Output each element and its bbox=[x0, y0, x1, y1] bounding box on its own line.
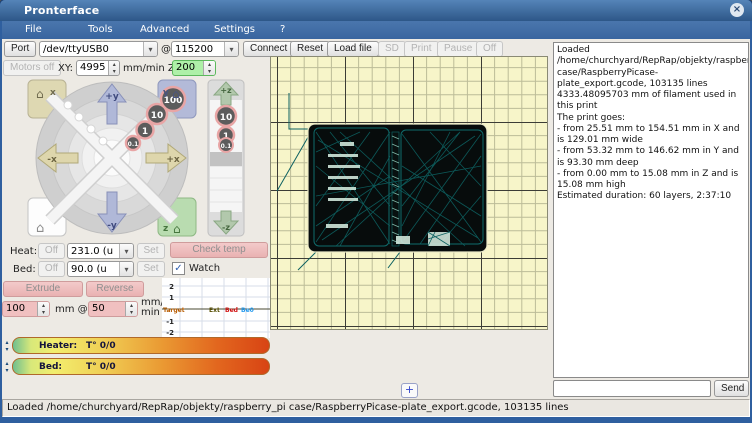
z-step-10-label: 10 bbox=[220, 113, 233, 123]
heater-gauge-value: T° 0/0 bbox=[86, 341, 116, 351]
check-temp-button[interactable]: Check temp bbox=[170, 242, 268, 258]
spin-up-icon[interactable]: ▴ bbox=[109, 61, 119, 68]
spin-down-icon[interactable]: ▾ bbox=[126, 309, 137, 316]
extrude-speed-value: 50 bbox=[89, 302, 125, 316]
spin-down-icon[interactable]: ▾ bbox=[2, 346, 12, 353]
dropdown-icon[interactable]: ▾ bbox=[224, 42, 238, 56]
home-icon: ⌂ bbox=[173, 222, 181, 236]
print-object bbox=[308, 124, 487, 252]
home-z-label: z bbox=[163, 224, 168, 234]
menu-file[interactable]: File bbox=[25, 24, 42, 35]
feed-unit-line2: min bbox=[141, 307, 160, 318]
heater-gauge[interactable]: ▴▾ Heater: T° 0/0 bbox=[2, 337, 270, 354]
spin-up-icon[interactable]: ▴ bbox=[2, 339, 12, 346]
menu-bar: File Tools Advanced Settings ? bbox=[2, 21, 750, 39]
graph-series-ext: Ext bbox=[209, 307, 220, 314]
heater-gauge-bar[interactable]: Heater: T° 0/0 bbox=[12, 337, 270, 354]
spinner-buttons[interactable]: ▴▾ bbox=[125, 302, 137, 316]
extrude-length-value: 100 bbox=[3, 302, 37, 316]
jog-pad: +y -y -x +x 100 10 1 0.1 ⌂ x y ⌂ ⌂ z ⌂ bbox=[10, 78, 250, 242]
xy-step-1-label: 1 bbox=[142, 127, 148, 137]
z-speed-spinner[interactable]: 200 ▴▾ bbox=[172, 60, 216, 76]
spinner-buttons[interactable]: ▴▾ bbox=[37, 302, 49, 316]
home-y-label: y bbox=[163, 88, 169, 98]
plus-x-label: +x bbox=[166, 155, 180, 165]
menu-help[interactable]: ? bbox=[280, 24, 285, 35]
heater-off-button[interactable]: Off bbox=[38, 243, 65, 259]
xy-step-10-label: 10 bbox=[151, 111, 164, 121]
z-speed-value: 200 bbox=[173, 61, 203, 75]
z-step-selected[interactable] bbox=[210, 152, 242, 166]
spinner-buttons[interactable]: ▴▾ bbox=[203, 61, 215, 75]
z-step-01-label: 0.1 bbox=[221, 143, 232, 150]
xy-speed-spinner[interactable]: 4995 ▴▾ bbox=[76, 60, 120, 76]
extrude-length-spinner[interactable]: 100 ▴▾ bbox=[2, 301, 50, 317]
bed-temp-combo[interactable]: 90.0 (u ▾ bbox=[67, 261, 134, 277]
minus-x-label: -x bbox=[47, 155, 57, 165]
menu-tools[interactable]: Tools bbox=[88, 24, 113, 35]
spin-up-icon[interactable]: ▴ bbox=[38, 302, 49, 309]
bed-temp-value: 90.0 (u bbox=[68, 264, 119, 275]
log-output[interactable]: Loaded /home/churchyard/RepRap/objekty/r… bbox=[553, 42, 749, 378]
pronterface-window: Pronterface × File Tools Advanced Settin… bbox=[0, 0, 752, 423]
dropdown-icon[interactable]: ▾ bbox=[119, 262, 133, 276]
extrude-speed-spinner[interactable]: 50 ▴▾ bbox=[88, 301, 138, 317]
port-value: /dev/ttyUSB0 bbox=[40, 44, 143, 55]
bed-gauge-bar[interactable]: Bed: T° 0/0 bbox=[12, 358, 270, 375]
minus-y-label: -y bbox=[107, 221, 117, 231]
status-bar: Loaded /home/churchyard/RepRap/objekty/r… bbox=[2, 399, 750, 417]
spin-down-icon[interactable]: ▾ bbox=[204, 68, 215, 75]
bed-label: Bed: bbox=[13, 264, 36, 275]
bed-set-button[interactable]: Set bbox=[137, 261, 165, 277]
connect-button[interactable]: Connect bbox=[243, 41, 294, 57]
motors-off-button[interactable]: Motors off bbox=[3, 60, 61, 76]
spin-down-icon[interactable]: ▾ bbox=[38, 309, 49, 316]
mmmin-z-label: mm/min Z: bbox=[123, 63, 178, 74]
gauge-stepper[interactable]: ▴▾ bbox=[2, 337, 12, 354]
load-file-button[interactable]: Load file bbox=[327, 41, 379, 57]
dropdown-icon[interactable]: ▾ bbox=[143, 42, 157, 56]
spin-down-icon[interactable]: ▾ bbox=[2, 367, 12, 374]
graph-series-bed0: Be0 bbox=[241, 307, 254, 314]
home-icon: ⌂ bbox=[36, 87, 44, 101]
baud-combo[interactable]: 115200 ▾ bbox=[171, 41, 239, 57]
plus-y-label: +y bbox=[105, 92, 119, 102]
watch-label: Watch bbox=[189, 263, 220, 274]
command-input[interactable] bbox=[553, 380, 711, 397]
graph-tick: -2 bbox=[166, 329, 174, 337]
bed-gauge-value: T° 0/0 bbox=[86, 362, 116, 372]
reverse-button[interactable]: Reverse bbox=[86, 281, 144, 297]
graph-tick: 2 bbox=[169, 283, 174, 291]
sd-button[interactable]: SD bbox=[378, 41, 406, 57]
port-button[interactable]: Port bbox=[4, 41, 36, 57]
graph-series-bed: Bed bbox=[225, 307, 238, 314]
heater-gauge-label: Heater: bbox=[39, 341, 77, 351]
heater-temp-combo[interactable]: 231.0 (u ▾ bbox=[67, 243, 134, 259]
menu-advanced[interactable]: Advanced bbox=[140, 24, 189, 35]
home-icon: ⌂ bbox=[172, 87, 180, 101]
home-icon: ⌂ bbox=[36, 221, 44, 236]
bed-off-button[interactable]: Off bbox=[38, 261, 65, 277]
bed-gauge-label: Bed: bbox=[39, 362, 62, 372]
baud-value: 115200 bbox=[172, 44, 224, 55]
temperature-graph: 2 1 -1 -2 Target Ext Bed Be0 bbox=[162, 278, 270, 338]
extrude-button[interactable]: Extrude bbox=[3, 281, 83, 297]
off-button[interactable]: Off bbox=[476, 41, 503, 57]
port-combo[interactable]: /dev/ttyUSB0 ▾ bbox=[39, 41, 158, 57]
checkbox-check-icon[interactable]: ✓ bbox=[172, 262, 185, 275]
heat-label: Heat: bbox=[10, 246, 37, 257]
watch-checkbox[interactable]: ✓ Watch bbox=[172, 262, 220, 275]
menu-settings[interactable]: Settings bbox=[214, 24, 255, 35]
graph-series-target: Target bbox=[163, 307, 185, 314]
feed-unit-label: mm/min bbox=[141, 298, 164, 318]
at-label: @ bbox=[161, 44, 171, 55]
home-x-label: x bbox=[50, 88, 56, 98]
pause-button[interactable]: Pause bbox=[437, 41, 479, 57]
spinner-buttons[interactable]: ▴▾ bbox=[108, 61, 119, 75]
graph-tick: 1 bbox=[169, 294, 174, 302]
spin-up-icon[interactable]: ▴ bbox=[126, 302, 137, 309]
heater-set-button[interactable]: Set bbox=[137, 243, 165, 259]
xy-step-01-label: 0.1 bbox=[128, 141, 139, 148]
plus-z-label: +z bbox=[220, 86, 232, 95]
graph-tick: -1 bbox=[166, 318, 174, 326]
reset-button[interactable]: Reset bbox=[290, 41, 330, 57]
spin-up-icon[interactable]: ▴ bbox=[2, 360, 12, 367]
minus-z-label: -z bbox=[222, 223, 230, 232]
window-title: Pronterface bbox=[24, 4, 99, 17]
zoom-in-button[interactable]: + bbox=[401, 383, 418, 398]
bed-gauge[interactable]: ▴▾ Bed: T° 0/0 bbox=[2, 358, 270, 375]
send-button[interactable]: Send bbox=[714, 380, 749, 397]
heater-temp-value: 231.0 (u bbox=[68, 246, 119, 257]
spin-down-icon[interactable]: ▾ bbox=[109, 68, 119, 75]
dropdown-icon[interactable]: ▾ bbox=[119, 244, 133, 258]
mm-at-label: mm @ bbox=[55, 304, 88, 315]
xy-speed-label: XY: bbox=[58, 63, 73, 74]
xy-speed-value: 4995 bbox=[77, 61, 108, 75]
spin-up-icon[interactable]: ▴ bbox=[204, 61, 215, 68]
print-button[interactable]: Print bbox=[404, 41, 439, 57]
gcode-viewer[interactable] bbox=[270, 56, 548, 330]
title-bar[interactable]: Pronterface × bbox=[0, 0, 752, 21]
gauge-stepper[interactable]: ▴▾ bbox=[2, 358, 12, 375]
close-icon[interactable]: × bbox=[730, 3, 744, 17]
